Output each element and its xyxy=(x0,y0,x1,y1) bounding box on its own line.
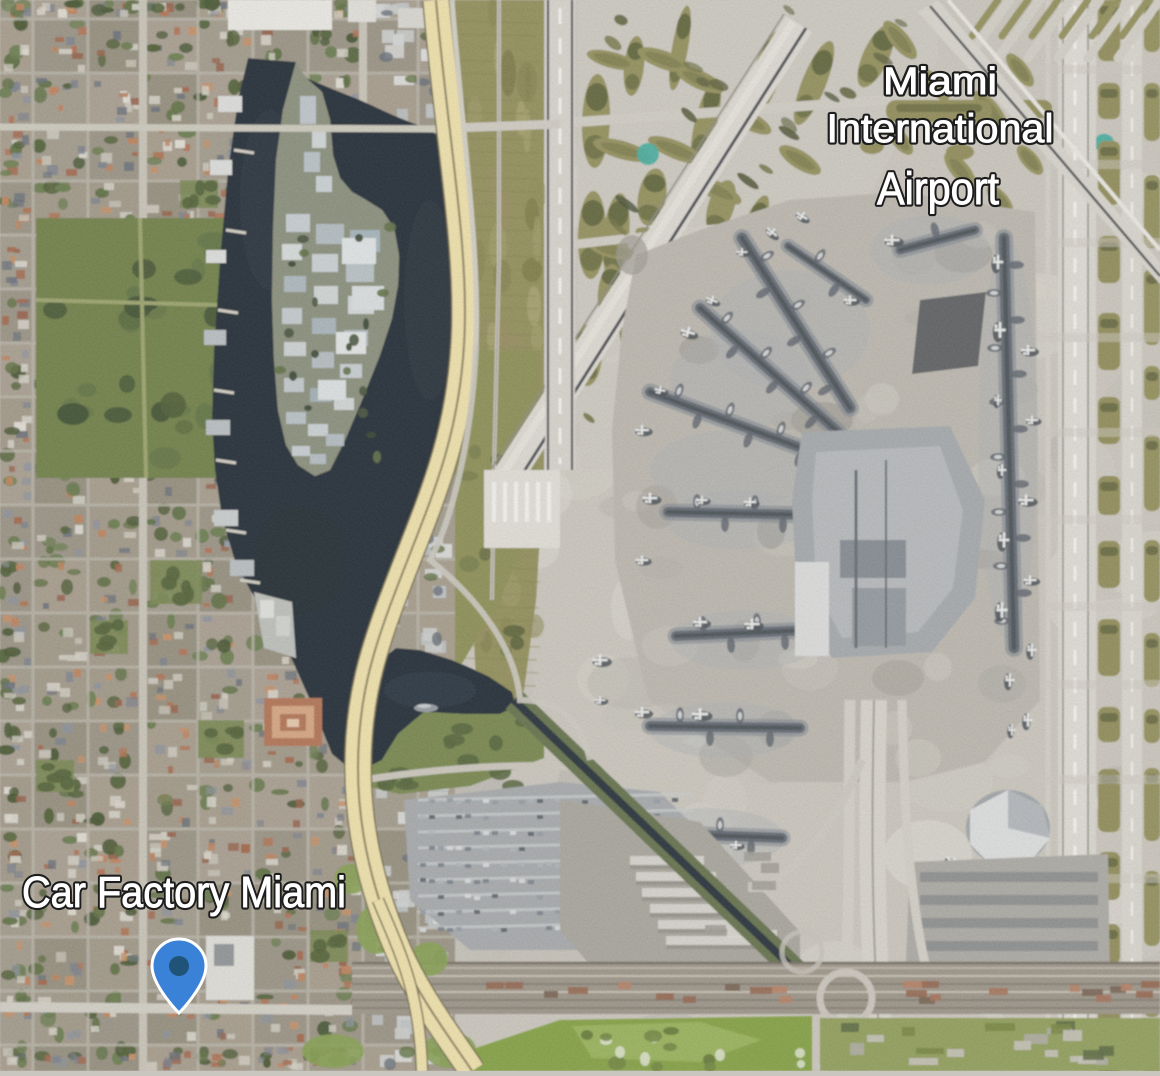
svg-text:Airport: Airport xyxy=(877,163,999,214)
svg-text:International: International xyxy=(827,107,1054,151)
svg-text:Miami: Miami xyxy=(883,61,997,103)
svg-text:Car Factory Miami: Car Factory Miami xyxy=(22,868,346,917)
